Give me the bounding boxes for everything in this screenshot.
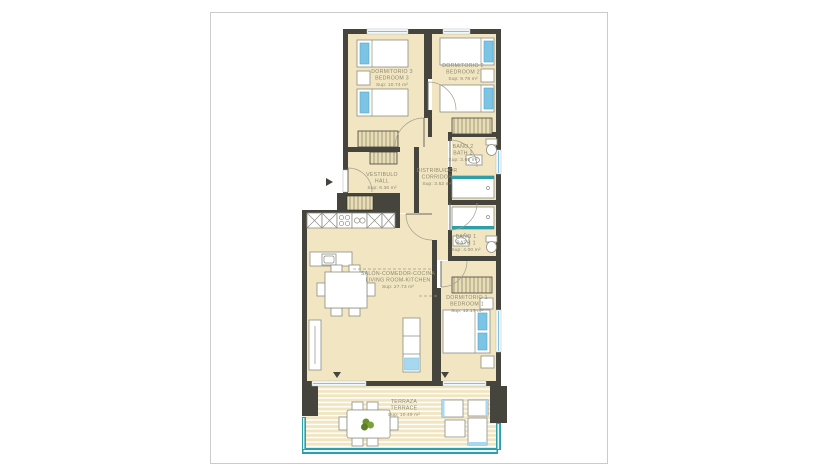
bedroom1-label-es: DORMITORIO 1 [446,295,488,301]
wardrobe [358,131,398,147]
lounger [468,400,488,416]
bedroom3-label-es: DORMITORIO 3 [371,69,413,75]
chair [331,308,342,316]
bath1-label-en: BATH 1 [456,241,476,247]
nightstand [481,69,494,82]
corridor-label-en: CORRIDOR [422,175,453,181]
corridor-label-area: Sup: 3.52 m² [422,181,452,187]
bedroom2-label-area: Sup: 9.78 m² [448,76,478,82]
bathtub-icon [452,207,494,229]
living-label-en: LIVING ROOM-KITCHEN [366,278,431,284]
bath1-label-area: Sup: 4.00 m² [451,247,481,253]
terrace-label-area: Sup: 10.49 m² [388,412,420,418]
kitchen-sink-icon [352,213,367,228]
hall-label-en: HALL [375,179,389,185]
chair [317,283,325,296]
bedroom1-terrace-door-icon [443,381,486,386]
terrace-label-en: TERRACE [391,406,418,412]
dining-table [325,272,367,308]
chair [352,402,363,410]
bedroom2-label-en: BEDROOM 2 [446,70,480,76]
chair [367,283,375,296]
bedroom1-label-en: BEDROOM 1 [450,302,484,308]
bath1-label-es: BAÑO 1 [456,233,477,240]
chair [367,438,378,446]
bath2-window-icon [496,150,501,174]
bedroom3-label-en: BEDROOM 3 [375,76,409,82]
floor-plan-drawing: DORMITORIO 3 BEDROOM 3 Sup: 10.74 m² DOR… [0,0,819,468]
lounger [445,420,465,437]
bedroom1-window-icon [496,310,501,352]
chair [339,417,347,430]
bath2-label-es: BAÑO 2 [453,143,474,150]
nightstand [357,71,370,85]
lounger [442,400,463,417]
chair [349,308,360,316]
entrance-opening [343,170,348,192]
bedroom1-label-area: Sup: 12.17 m² [451,308,483,314]
living-label-area: Sup: 27.73 m² [382,284,414,290]
wardrobe [452,118,492,134]
stove-icon [337,213,352,228]
chair [352,438,363,446]
lounger [468,418,487,445]
chair [367,402,378,410]
nightstand [481,356,494,368]
wardrobe [452,277,492,293]
entrance-arrow-icon [326,178,333,186]
bedroom2-window-icon [443,29,470,34]
hall-closet [370,152,397,164]
hall-label-area: Sup: 6.36 m² [367,185,397,191]
bath2-label-area: Sup: 3.66 m² [448,157,478,163]
bedroom3-window-icon [367,29,408,34]
hall-label-es: VESTIBULO [366,172,398,178]
floor-plan-canvas: DORMITORIO 3 BEDROOM 3 Sup: 10.74 m² DOR… [0,0,819,468]
living-terrace-door-icon [312,381,366,386]
terrace-label-es: TERRAZA [391,399,418,405]
staircase [347,196,373,210]
corridor-label-es: DISTRIBUIDOR [417,168,458,174]
living-label-es: SALÓN-COMEDOR-COCINA [361,270,436,277]
bathtub-icon [452,176,494,198]
bedroom3-label-area: Sup: 10.74 m² [376,82,408,88]
bath2-label-en: BATH 2 [453,151,473,157]
bedroom2-label-es: DORMITORIO 2 [442,63,484,69]
kitchen-island [310,252,352,266]
chair [390,417,398,430]
